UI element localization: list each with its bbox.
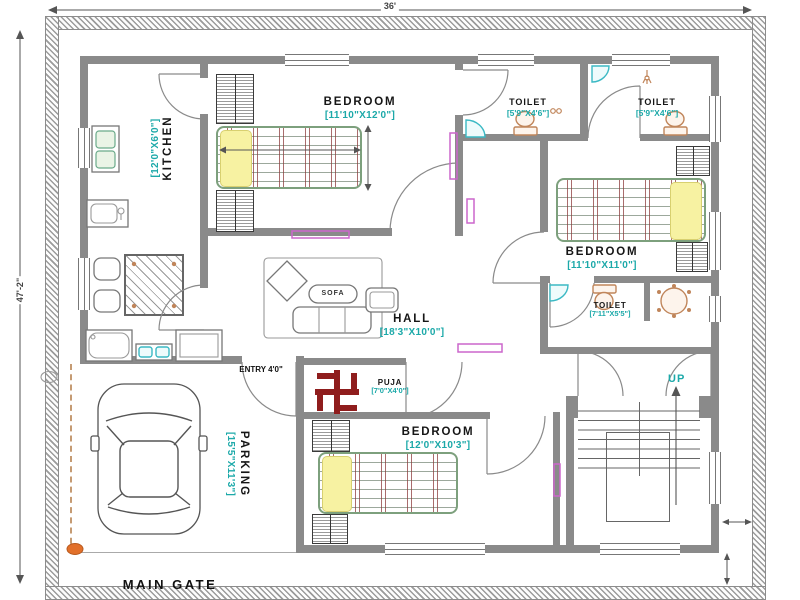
- bed-pillow: [220, 130, 252, 187]
- window: [709, 96, 721, 142]
- up-label: UP: [668, 373, 685, 385]
- shower-icon: [643, 70, 651, 84]
- wall-segment: [644, 283, 650, 321]
- sofa-set: [264, 258, 398, 338]
- swastika-icon: [318, 373, 356, 411]
- car-icon: [91, 384, 207, 534]
- compound-wall-top: [45, 16, 766, 30]
- wall-segment: [594, 276, 711, 283]
- floor-plan: BEDROOM [11'10"X12'0"] TOILET [5'9"X4'6"…: [0, 0, 800, 600]
- bedroom-3-label: BEDROOM [12'0"X10'3"]: [402, 426, 475, 451]
- toilet-2-label: TOILET [5'9"X4'6"]: [636, 97, 678, 118]
- wall-segment: [455, 115, 463, 236]
- kitchen-name: KITCHEN: [162, 115, 176, 180]
- wall-segment: [200, 114, 208, 288]
- stove-icon: [92, 126, 119, 172]
- sofa-label: SOFA: [321, 290, 344, 297]
- parking-boundary-line: [70, 552, 296, 553]
- bedroom-2-label: BEDROOM [11'10"X11'0"]: [566, 246, 639, 271]
- puja-label: PUJA [7'0"X4'0"]: [371, 378, 408, 396]
- hall-label: HALL [18'3"X10'0"]: [380, 313, 445, 338]
- wall-segment: [553, 412, 560, 545]
- wall-segment: [540, 134, 548, 232]
- parking-boundary-dashed: [70, 364, 74, 554]
- plot-width-dimension: 36': [381, 1, 399, 11]
- bedroom-1-name: BEDROOM: [324, 96, 397, 110]
- bed: [318, 452, 458, 514]
- chair-icon: [94, 290, 120, 312]
- wall-segment: [463, 134, 580, 141]
- puja-dims: [7'0"X4'0"]: [371, 387, 408, 396]
- plot-depth-dimension: 47'-2": [15, 276, 25, 304]
- wall-segment: [80, 56, 88, 364]
- wall-segment: [540, 283, 548, 354]
- wall-segment: [566, 418, 574, 545]
- bed-pillow: [670, 182, 702, 240]
- wall-segment: [304, 358, 406, 365]
- window: [709, 296, 721, 322]
- wall-segment: [640, 134, 711, 141]
- window: [78, 128, 90, 168]
- wall-segment: [304, 412, 490, 419]
- wardrobe: [312, 420, 350, 452]
- window: [709, 212, 721, 270]
- wc-icon: [593, 285, 616, 293]
- bedroom-2-name: BEDROOM: [566, 246, 639, 260]
- compound-wall-right: [752, 16, 766, 600]
- corner-table-icon: [267, 261, 307, 301]
- parking-dims: [15'5"X11'3"]: [224, 431, 236, 497]
- window: [612, 54, 670, 66]
- wall-segment: [455, 56, 463, 70]
- basin-icon: [550, 285, 568, 301]
- parking-name: PARKING: [236, 431, 250, 497]
- window: [709, 452, 721, 504]
- bedroom-3-dims: [12'0"X10'3"]: [402, 440, 475, 452]
- bedroom-2-dims: [11'10"X11'0"]: [566, 260, 639, 272]
- window: [285, 54, 349, 66]
- wall-segment: [540, 347, 711, 354]
- toilet-3-label: TOILET [7'11"X5'5"]: [589, 301, 630, 319]
- bedroom-3-name: BEDROOM: [402, 426, 475, 440]
- window: [478, 54, 534, 66]
- compound-wall-left: [45, 16, 59, 600]
- toilet-2-dims: [5'9"X4'6"]: [636, 108, 678, 118]
- toilet-1-label: TOILET [5'9"X4'6"]: [507, 97, 549, 118]
- window: [600, 543, 680, 555]
- chair-icon: [94, 258, 120, 280]
- bed-pillow: [322, 456, 352, 512]
- vanity-icon: [661, 288, 687, 314]
- wall-segment: [699, 396, 719, 418]
- dining-table: [124, 254, 184, 316]
- bed: [556, 178, 706, 242]
- kitchen-dims: [12'0"X6'0"]: [150, 115, 162, 180]
- wall-segment: [296, 356, 304, 553]
- kitchen-sink-icon: [87, 200, 128, 227]
- wall-segment: [200, 332, 208, 364]
- wall-segment: [566, 396, 578, 418]
- wall-segment: [580, 56, 588, 141]
- bedroom-1-dims: [11'10"X12'0"]: [324, 110, 397, 122]
- tap-icon: [551, 109, 556, 114]
- bed: [216, 126, 362, 189]
- toilet-2-name: TOILET: [636, 97, 678, 108]
- wardrobe: [216, 190, 254, 232]
- window: [78, 258, 90, 310]
- toilet-1-name: TOILET: [507, 97, 549, 108]
- basin-icon: [592, 66, 609, 82]
- wardrobe: [676, 242, 708, 272]
- entry-label: ENTRY 4'0": [239, 365, 283, 374]
- wall-segment: [540, 276, 550, 283]
- hall-dims: [18'3"X10'0"]: [380, 327, 445, 339]
- toilet-1-dims: [5'9"X4'6"]: [507, 108, 549, 118]
- wall-segment: [200, 56, 208, 78]
- wardrobe: [312, 514, 348, 544]
- chair-icon: [366, 288, 398, 312]
- wall-segment: [80, 356, 242, 364]
- main-gate-label: MAIN GATE: [123, 577, 217, 592]
- wardrobe: [676, 146, 710, 176]
- hall-name: HALL: [380, 313, 445, 327]
- window: [385, 543, 485, 555]
- stairs-inner-flight: [606, 432, 670, 522]
- sofa-3seat-icon: [293, 307, 371, 333]
- bedroom-1-label: BEDROOM [11'10"X12'0"]: [324, 96, 397, 121]
- toilet-3-dims: [7'11"X5'5"]: [589, 310, 630, 319]
- wardrobe: [216, 74, 254, 124]
